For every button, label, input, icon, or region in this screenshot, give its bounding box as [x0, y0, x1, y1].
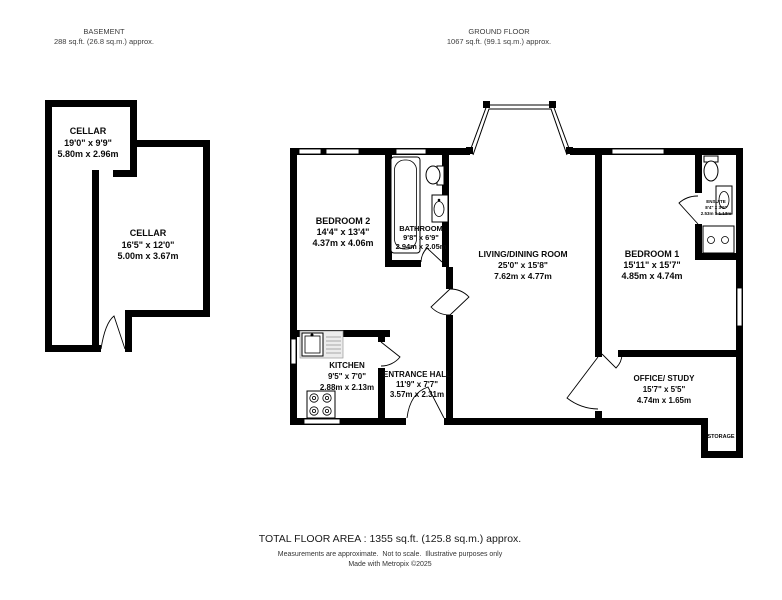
credit: Made with Metropix ©2025: [348, 560, 431, 568]
bedroom1-label: BEDROOM 1 15'11" x 15'7" 4.85m x 4.74m: [621, 249, 682, 281]
cellar2-name: CELLAR: [130, 228, 167, 238]
hall-living-door-swing-2: [431, 289, 450, 315]
office-study-name: OFFICE/ STUDY: [634, 374, 696, 383]
hall-living-door-swing-1: [450, 289, 469, 315]
living-dining-name: LIVING/DINING ROOM: [478, 249, 567, 259]
basement-header: BASEMENT 288 sq.ft. (26.8 sq.m.) approx.: [54, 27, 154, 46]
entrance-hall-metric: 3.57m x 2.31m: [390, 390, 444, 399]
floorplan-page: BASEMENT 288 sq.ft. (26.8 sq.m.) approx.…: [0, 0, 782, 600]
office-study-imperial: 15'7" x 5'5": [643, 385, 686, 394]
office-study-label: OFFICE/ STUDY 15'7" x 5'5" 4.74m x 1.65m: [634, 374, 696, 405]
bathroom-name: BATHROOM: [399, 224, 443, 233]
bedroom1-imperial: 15'11" x 15'7": [623, 260, 680, 270]
basement-door-swing: [101, 316, 125, 349]
ground-floor-area: 1067 sq.ft. (99.1 sq.m.) approx.: [447, 37, 551, 46]
bedroom2-label: BEDROOM 2 14'4" x 13'4" 4.37m x 4.06m: [312, 216, 373, 248]
basement-plan: CELLAR 19'0" x 9'9" 5.80m x 2.96m CELLAR…: [45, 100, 210, 352]
floorplan-image: BASEMENT 288 sq.ft. (26.8 sq.m.) approx.…: [0, 0, 782, 600]
kitchen-name: KITCHEN: [329, 361, 365, 370]
ensuite-imperial: 8'4" x 3'9": [705, 205, 726, 210]
ensuite-metric: 2.53m x 1.13m: [701, 211, 732, 216]
bedroom1-name: BEDROOM 1: [625, 249, 680, 259]
bathroom-metric: 2.94m x 2.05m: [396, 242, 447, 251]
kitchen-label: KITCHEN 9'5" x 7'0" 2.88m x 2.13m: [320, 361, 374, 392]
storage-label: STORAGE: [707, 434, 734, 440]
entrance-hall-imperial: 11'9" x 7'7": [396, 380, 438, 389]
cellar1-name: CELLAR: [70, 126, 107, 136]
cellar2-metric: 5.00m x 3.67m: [117, 251, 178, 261]
entrance-hall-name: ENTRANCE HALL: [383, 370, 451, 379]
bedroom2-name: BEDROOM 2: [316, 216, 371, 226]
bedroom1-window: [612, 149, 664, 154]
ground-floor-walls: [290, 148, 743, 458]
bedroom2-imperial: 14'4" x 13'4": [317, 227, 370, 237]
basement-title: BASEMENT: [83, 27, 125, 36]
bathroom-window: [396, 149, 426, 154]
disclaimer: Measurements are approximate. Not to sca…: [278, 551, 503, 558]
cellar1-label: CELLAR 19'0" x 9'9" 5.80m x 2.96m: [57, 126, 118, 159]
bedroom1-side-window: [737, 288, 742, 326]
cellar1-metric: 5.80m x 2.96m: [57, 149, 118, 159]
kitchen-imperial: 9'5" x 7'0": [328, 372, 366, 381]
bay-window: [466, 101, 573, 155]
ensuite-door-swing: [679, 196, 698, 224]
kitchen-bottom-window: [304, 419, 340, 424]
kitchen-metric: 2.88m x 2.13m: [320, 383, 374, 392]
ensuite-name: ENSUITE: [706, 199, 726, 204]
cellar2-imperial: 16'5" x 12'0": [122, 240, 175, 250]
cellar1-imperial: 19'0" x 9'9": [64, 138, 112, 148]
ensuite-toilet-icon: [704, 161, 718, 181]
footer: TOTAL FLOOR AREA : 1355 sq.ft. (125.8 sq…: [259, 533, 521, 568]
office-study-metric: 4.74m x 1.65m: [637, 396, 691, 405]
office-door-swing: [567, 357, 598, 409]
living-dining-metric: 7.62m x 4.77m: [494, 271, 552, 281]
bedroom2-window-1: [299, 149, 321, 154]
kitchen-door-swing: [381, 342, 400, 366]
toilet-icon: [426, 166, 440, 184]
ground-floor-plan: BEDROOM 2 14'4" x 13'4" 4.37m x 4.06m BA…: [290, 101, 743, 458]
cellar2-label: CELLAR 16'5" x 12'0" 5.00m x 3.67m: [117, 228, 178, 261]
ground-floor-title: GROUND FLOOR: [468, 27, 530, 36]
total-floor-area: TOTAL FLOOR AREA : 1355 sq.ft. (125.8 sq…: [259, 533, 521, 545]
bathroom-label: BATHROOM 9'8" x 6'9" 2.94m x 2.05m: [396, 224, 447, 251]
ground-floor-header: GROUND FLOOR 1067 sq.ft. (99.1 sq.m.) ap…: [447, 27, 551, 46]
bedroom1-metric: 4.85m x 4.74m: [621, 271, 682, 281]
bathroom-imperial: 9'8" x 6'9": [403, 233, 439, 242]
basement-area: 288 sq.ft. (26.8 sq.m.) approx.: [54, 37, 154, 46]
kitchen-side-window: [291, 339, 296, 364]
living-dining-imperial: 25'0" x 15'8": [498, 260, 548, 270]
entrance-hall-label: ENTRANCE HALL 11'9" x 7'7" 3.57m x 2.31m: [383, 370, 451, 399]
bedroom2-metric: 4.37m x 4.06m: [312, 238, 373, 248]
bedroom2-window-2: [326, 149, 359, 154]
living-dining-label: LIVING/DINING ROOM 25'0" x 15'8" 7.62m x…: [478, 249, 567, 281]
